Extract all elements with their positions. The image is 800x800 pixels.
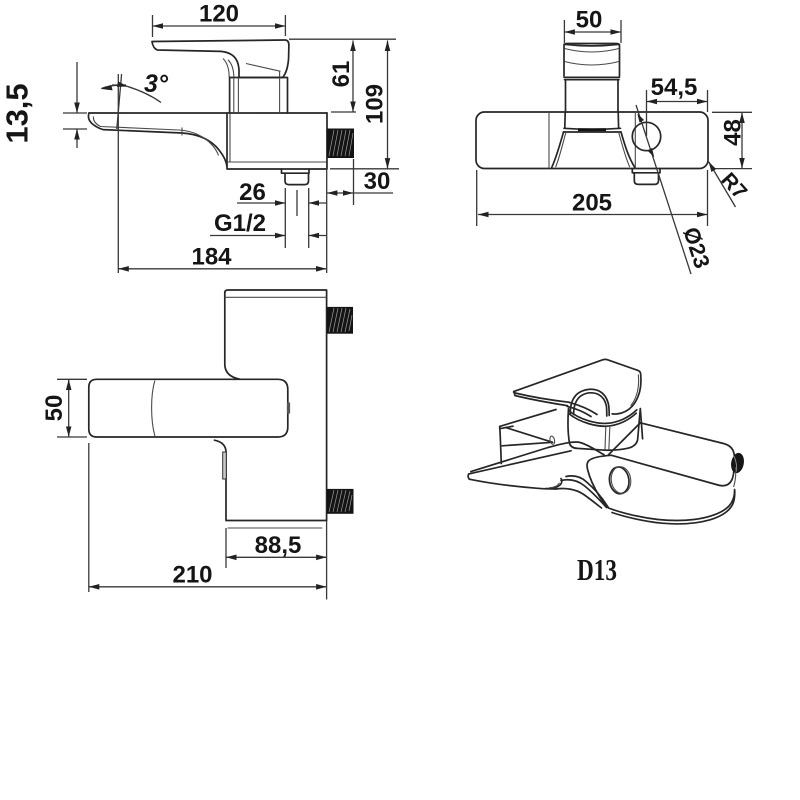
svg-text:210: 210 [172,562,212,589]
svg-text:120: 120 [199,1,239,28]
svg-text:30: 30 [364,168,391,195]
svg-text:88,5: 88,5 [255,532,302,559]
svg-text:D13: D13 [577,552,617,587]
svg-text:3°: 3° [144,70,169,98]
svg-text:48: 48 [720,119,747,146]
svg-text:13,5: 13,5 [0,83,35,143]
svg-text:109: 109 [362,84,389,124]
svg-text:50: 50 [41,395,68,422]
svg-text:50: 50 [576,7,603,34]
svg-text:205: 205 [572,190,612,217]
svg-text:54,5: 54,5 [651,74,698,101]
svg-text:61: 61 [328,61,355,88]
svg-text:G1/2: G1/2 [214,210,266,237]
svg-text:184: 184 [191,244,232,271]
svg-text:26: 26 [239,179,266,206]
